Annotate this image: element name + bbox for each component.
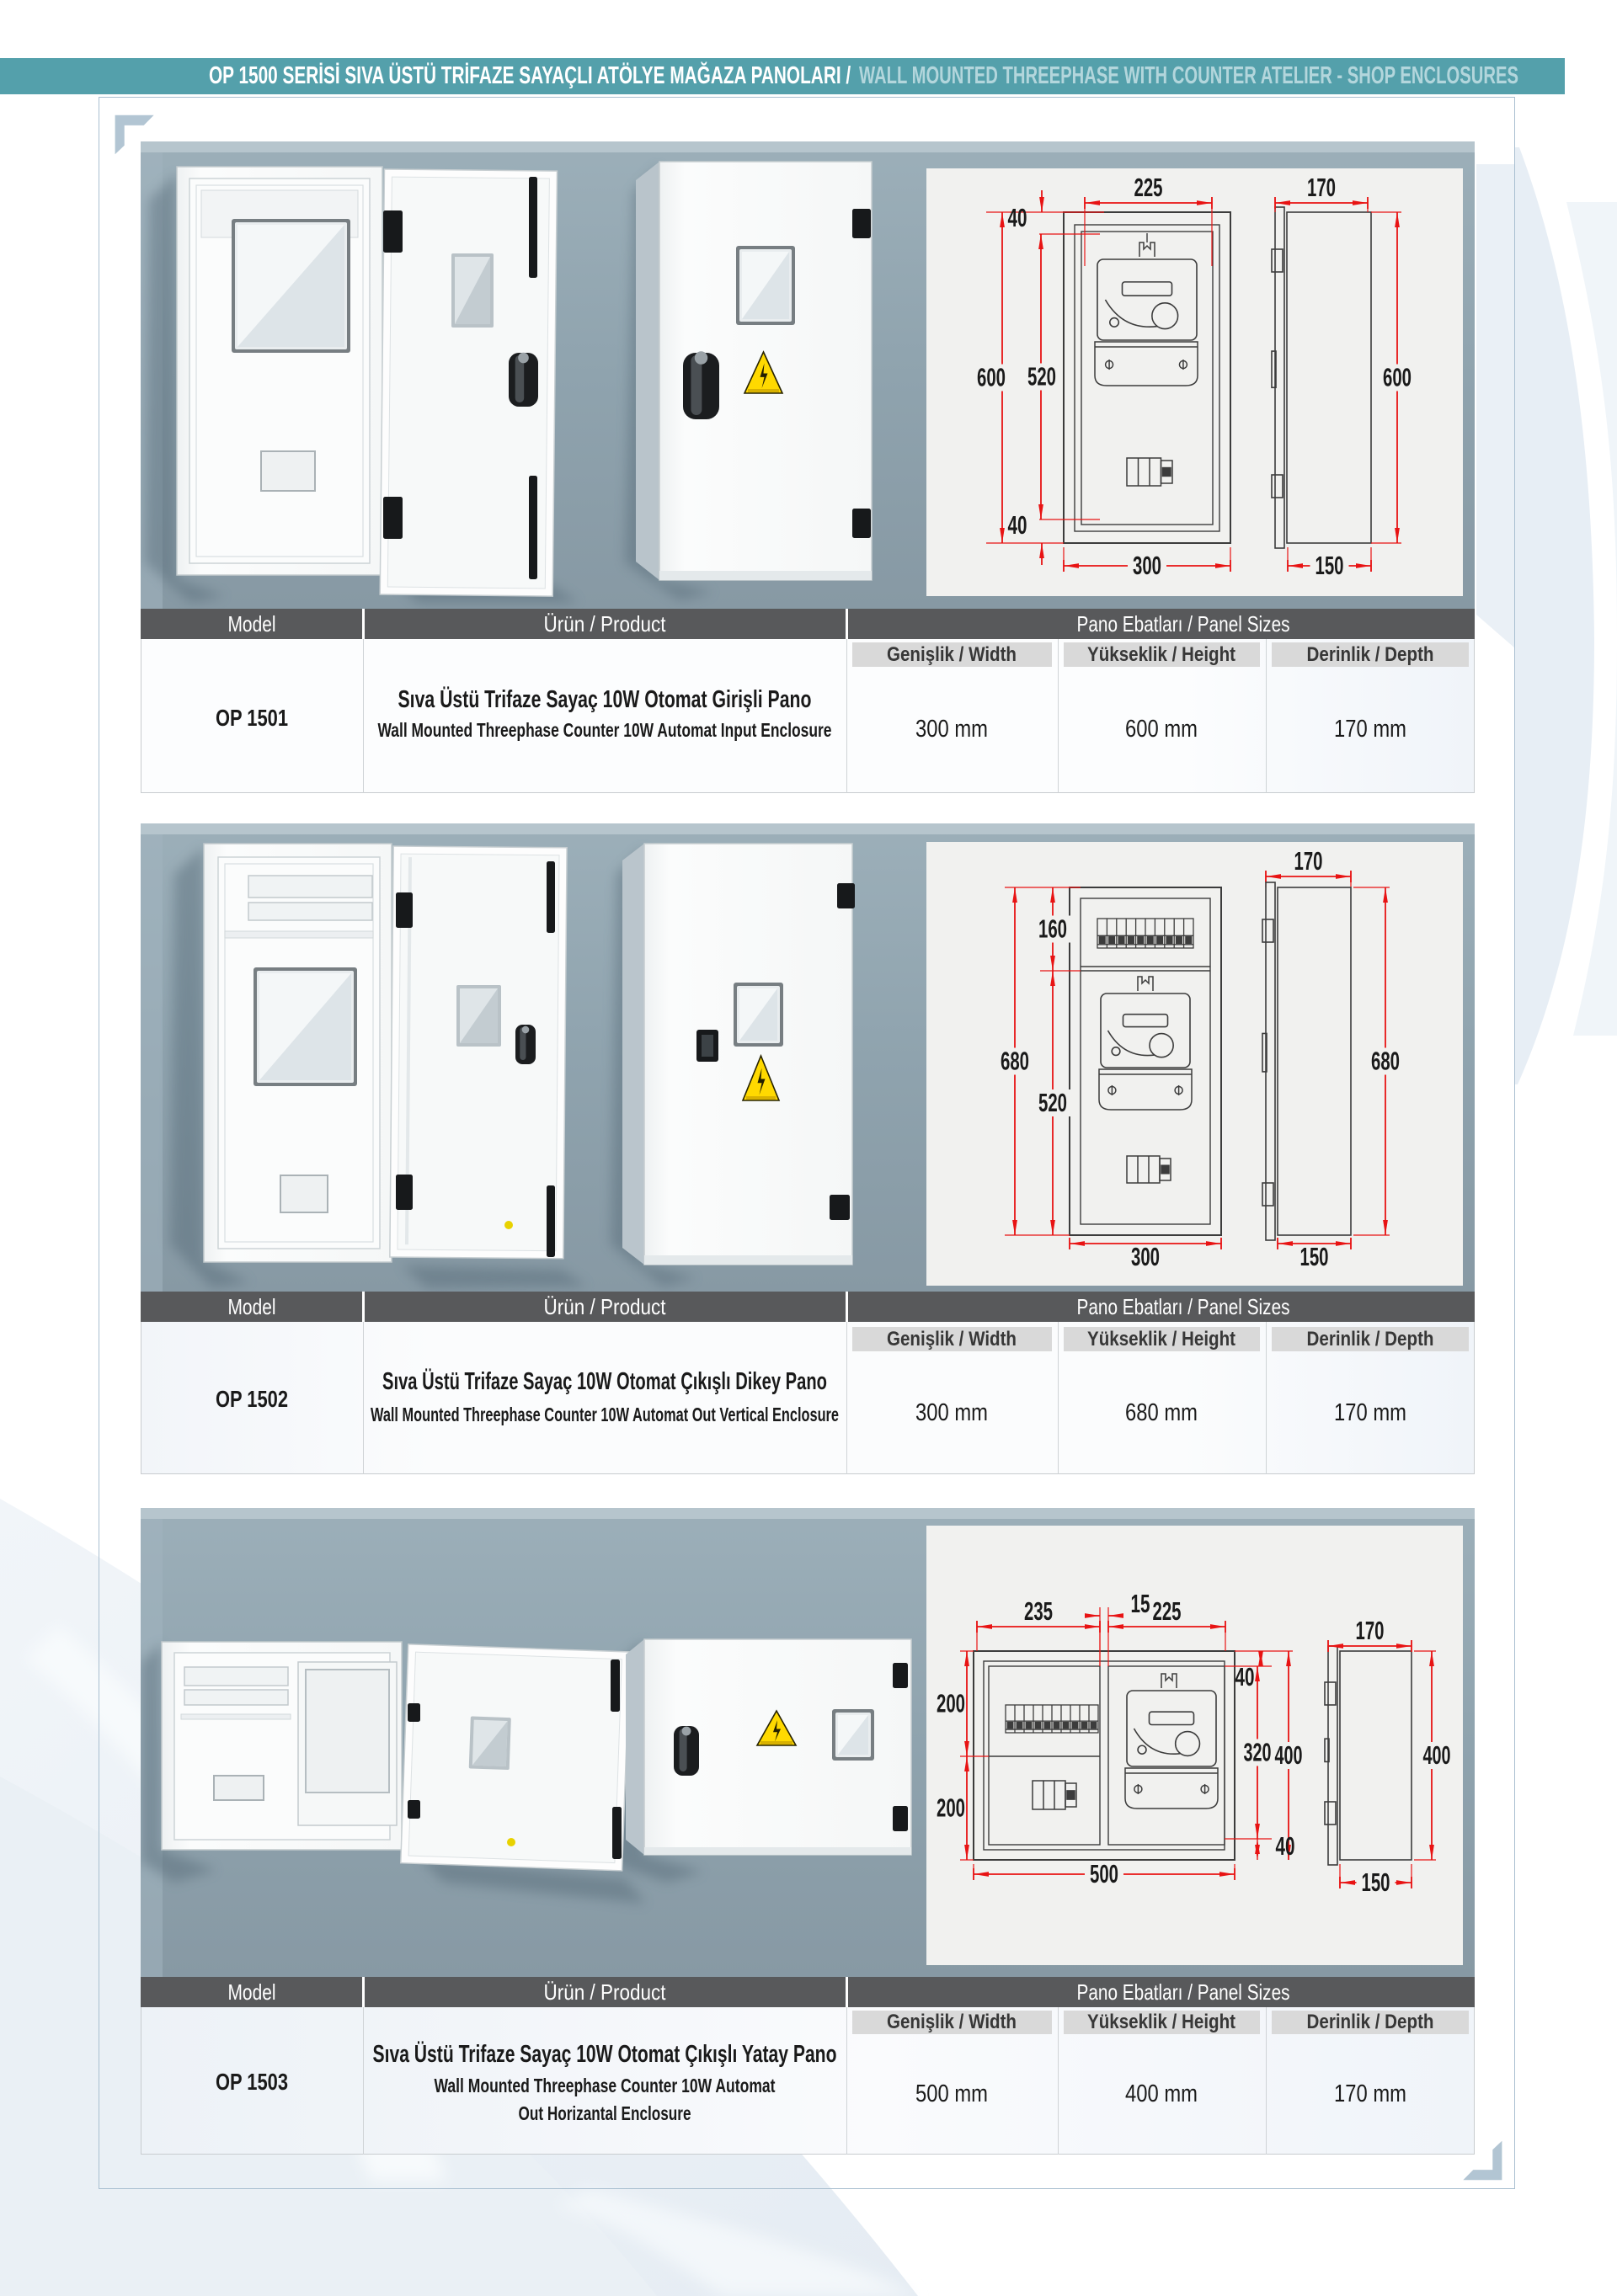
- svg-text:40: 40: [1008, 203, 1027, 232]
- svg-text:600: 600: [977, 363, 1006, 392]
- svg-text:150: 150: [1315, 551, 1344, 580]
- svg-text:150: 150: [1362, 1867, 1390, 1897]
- svg-text:500: 500: [1090, 1859, 1118, 1888]
- svg-text:160: 160: [1038, 914, 1067, 944]
- svg-text:150: 150: [1300, 1242, 1329, 1271]
- svg-text:225: 225: [1153, 1596, 1182, 1626]
- svg-text:600: 600: [1383, 363, 1412, 392]
- svg-text:225: 225: [1134, 173, 1163, 202]
- svg-text:40: 40: [1235, 1662, 1255, 1691]
- svg-text:400: 400: [1275, 1740, 1303, 1770]
- svg-text:170: 170: [1294, 846, 1323, 876]
- svg-text:680: 680: [1371, 1047, 1400, 1076]
- svg-text:170: 170: [1307, 173, 1336, 202]
- svg-text:40: 40: [1276, 1831, 1295, 1861]
- svg-text:520: 520: [1027, 362, 1056, 392]
- svg-text:170: 170: [1356, 1616, 1385, 1645]
- svg-text:320: 320: [1244, 1738, 1272, 1767]
- svg-text:400: 400: [1423, 1740, 1451, 1770]
- svg-text:300: 300: [1131, 1242, 1160, 1271]
- svg-text:300: 300: [1133, 551, 1161, 580]
- svg-text:200: 200: [937, 1793, 965, 1823]
- svg-text:520: 520: [1038, 1088, 1067, 1117]
- svg-text:15: 15: [1131, 1589, 1150, 1618]
- svg-text:680: 680: [1001, 1047, 1029, 1076]
- svg-text:235: 235: [1024, 1596, 1053, 1626]
- svg-text:40: 40: [1008, 510, 1027, 540]
- svg-text:200: 200: [937, 1689, 965, 1718]
